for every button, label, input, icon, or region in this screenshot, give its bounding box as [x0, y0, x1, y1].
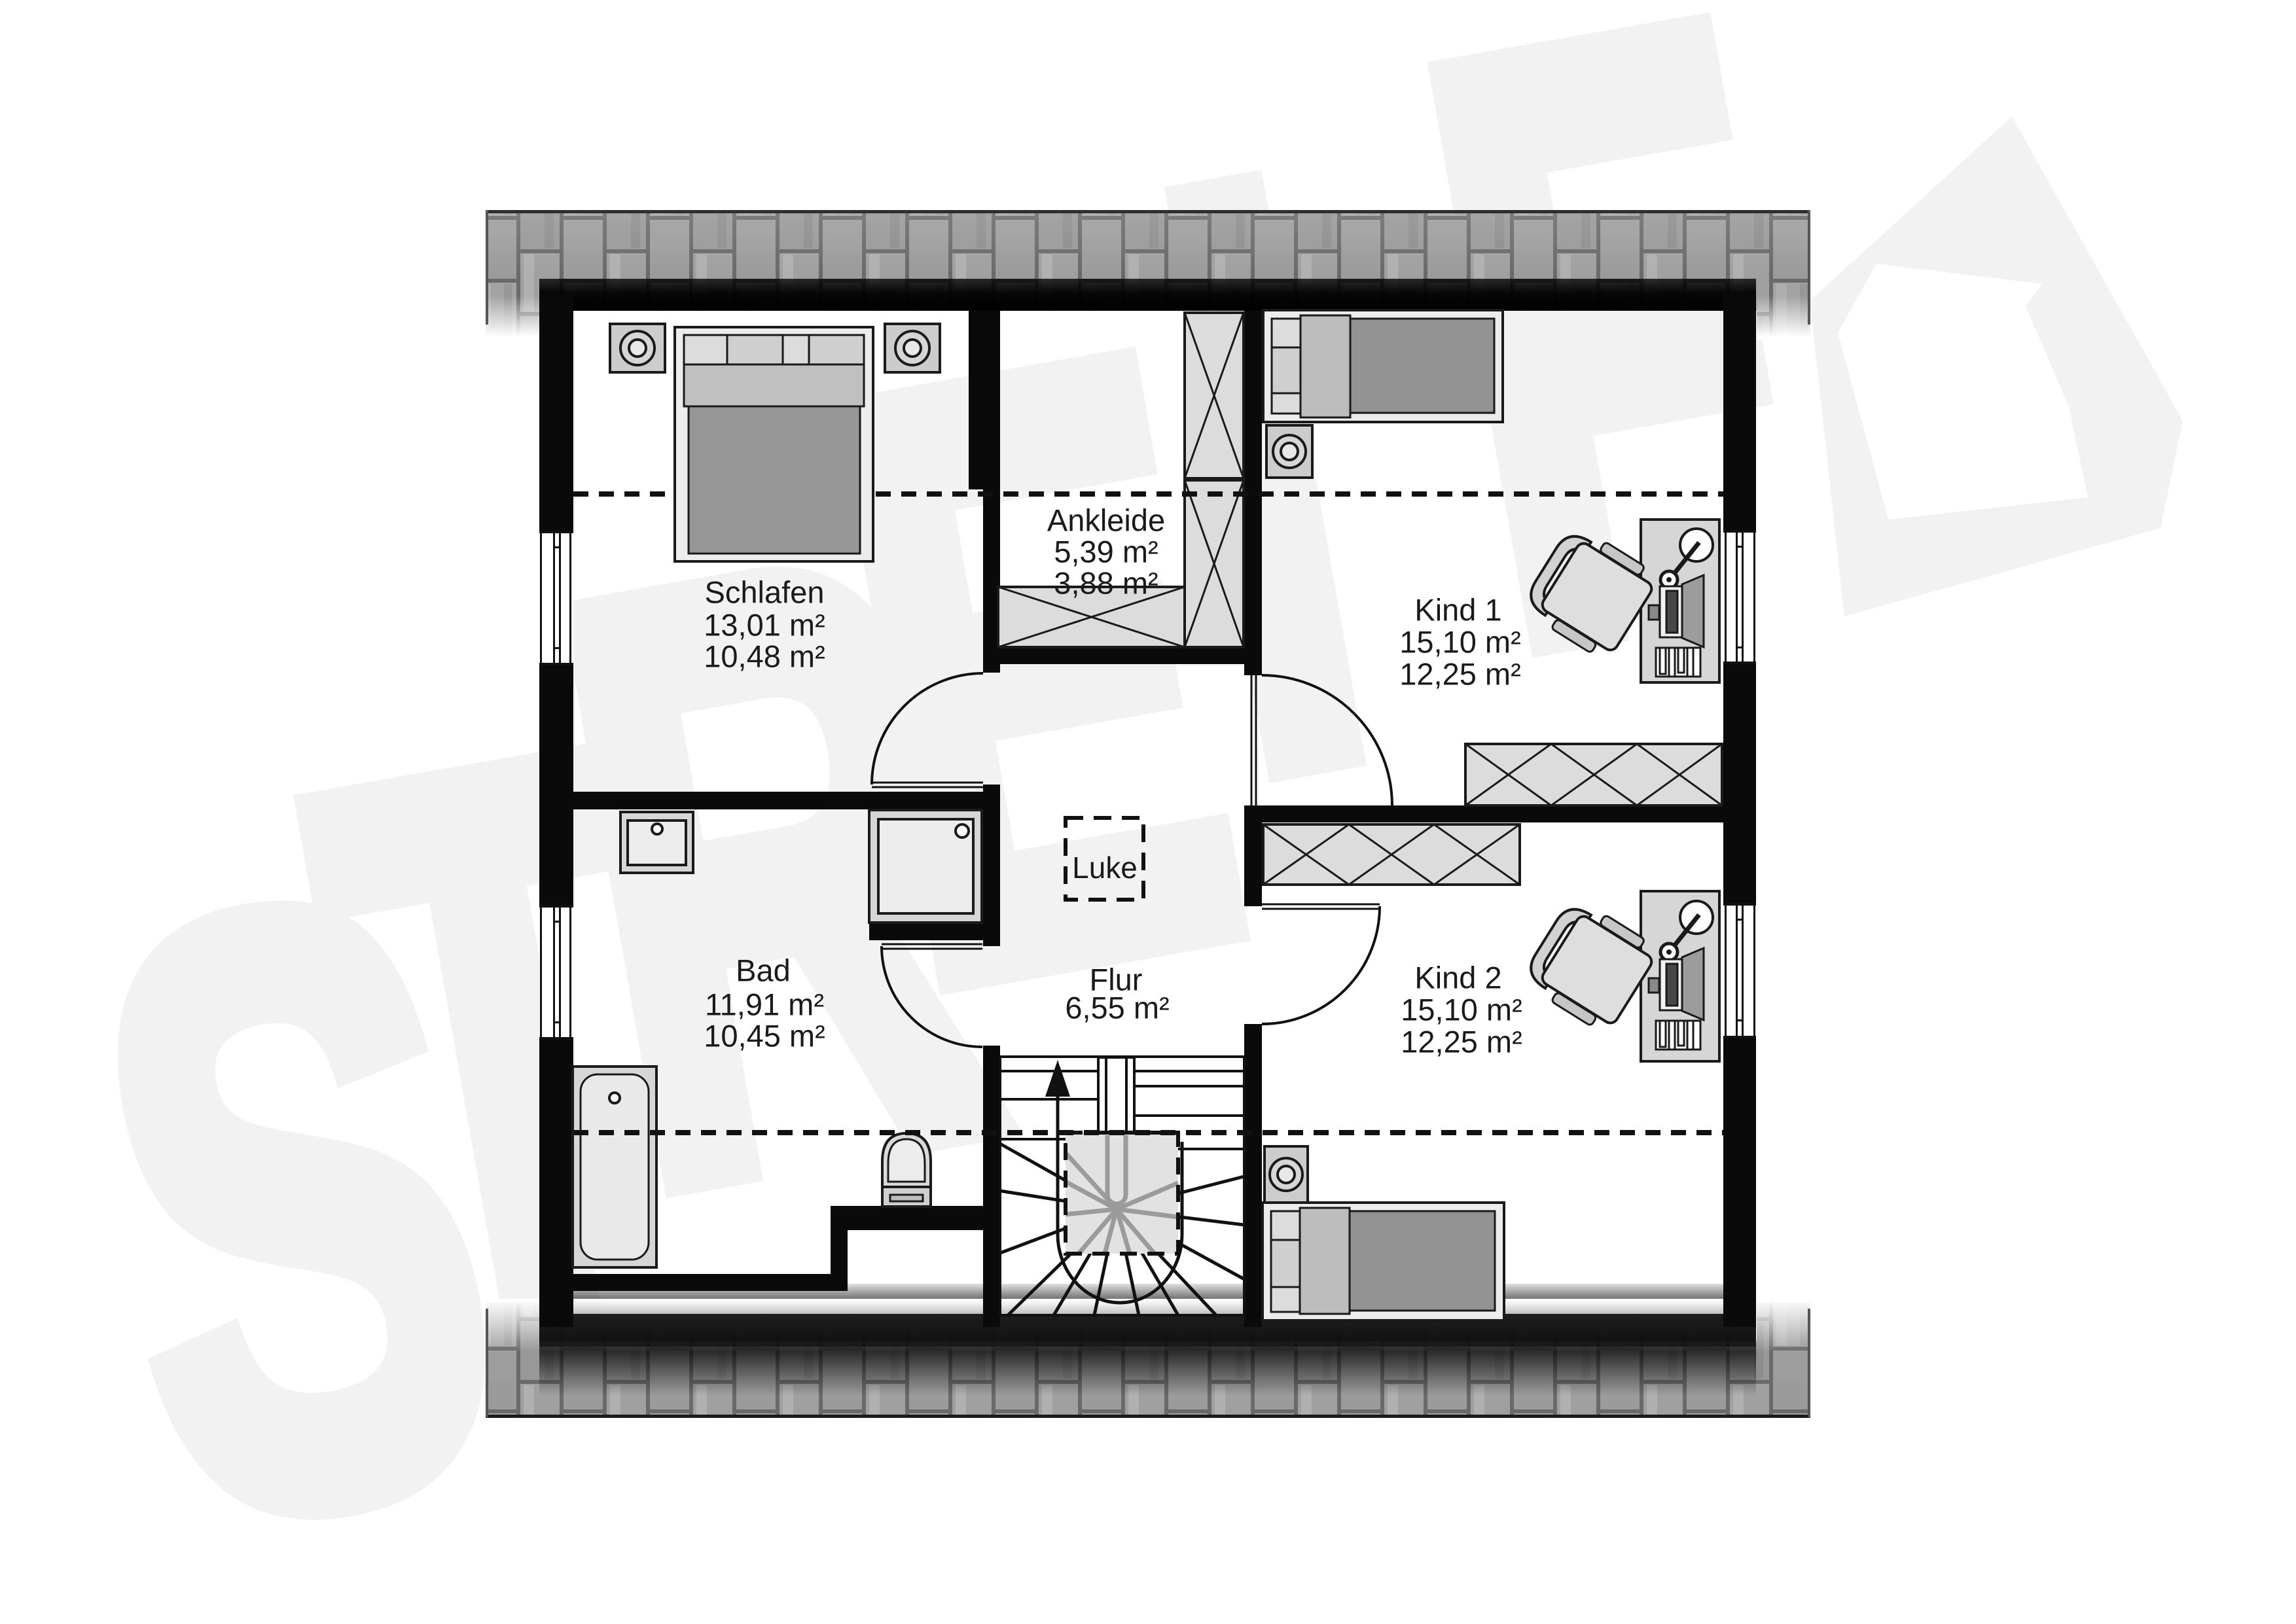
svg-text:10,45 m²: 10,45 m² [704, 1019, 825, 1053]
svg-text:15,10 m²: 15,10 m² [1401, 993, 1522, 1027]
svg-text:6,55 m²: 6,55 m² [1065, 991, 1169, 1025]
svg-text:Kind 1: Kind 1 [1414, 593, 1501, 627]
svg-text:5,39 m²: 5,39 m² [1054, 535, 1158, 569]
svg-text:15,10 m²: 15,10 m² [1399, 625, 1520, 660]
svg-text:Ankleide: Ankleide [1047, 503, 1165, 538]
svg-text:Luke: Luke [1072, 851, 1138, 885]
svg-text:12,25 m²: 12,25 m² [1399, 657, 1520, 692]
svg-text:11,91 m²: 11,91 m² [705, 987, 824, 1022]
svg-text:13,01 m²: 13,01 m² [704, 608, 825, 643]
svg-text:Schlafen: Schlafen [705, 575, 825, 610]
svg-text:Bad: Bad [736, 953, 791, 988]
svg-text:Kind 2: Kind 2 [1414, 961, 1501, 995]
svg-text:3,88 m²: 3,88 m² [1054, 566, 1158, 601]
svg-text:10,48 m²: 10,48 m² [704, 639, 825, 674]
svg-text:12,25 m²: 12,25 m² [1401, 1025, 1522, 1059]
